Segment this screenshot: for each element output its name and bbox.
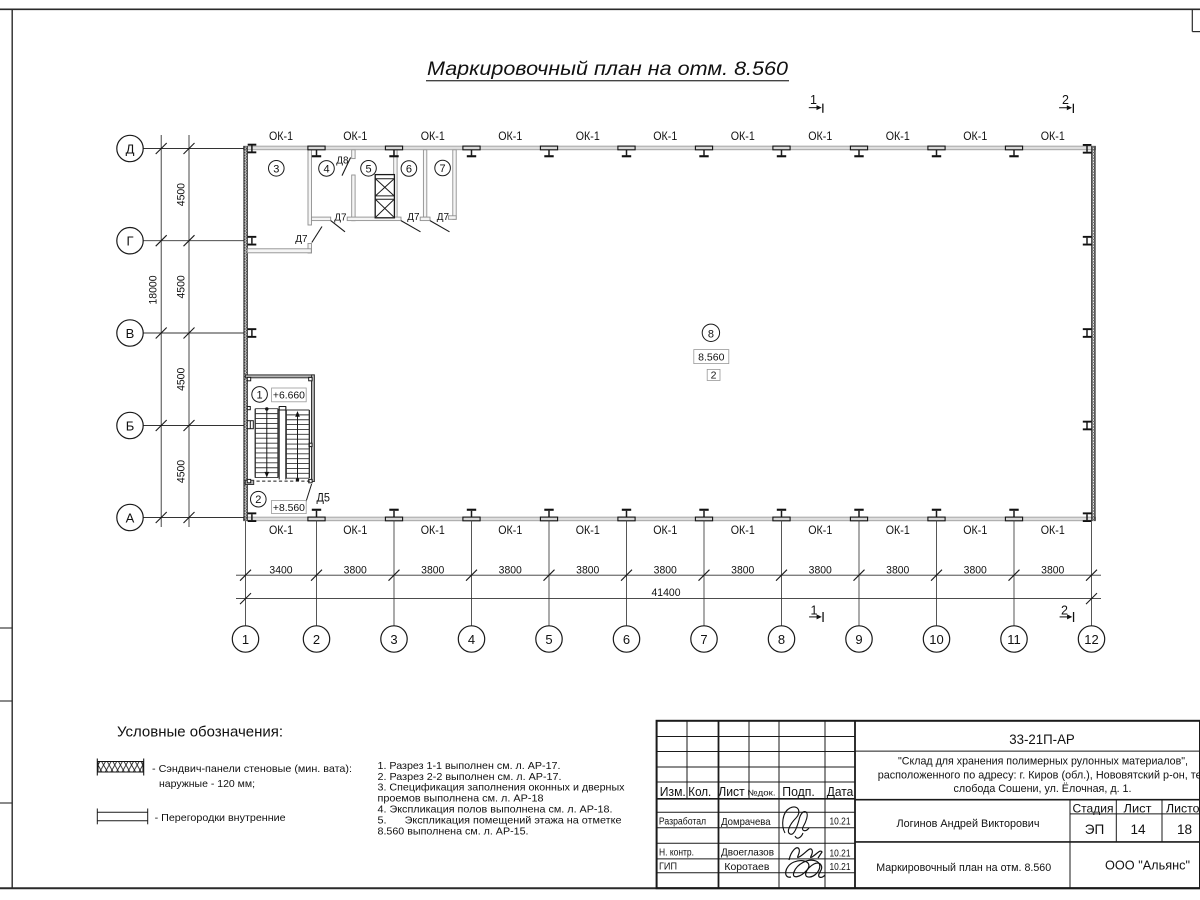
svg-text:8.560: 8.560 xyxy=(698,351,724,363)
svg-text:3800: 3800 xyxy=(809,564,832,576)
svg-text:Маркировочный план на отм. 8.5: Маркировочный план на отм. 8.560 xyxy=(427,58,788,80)
svg-text:3800: 3800 xyxy=(421,564,444,576)
svg-text:наружные - 120 мм;: наружные - 120 мм; xyxy=(159,779,255,790)
svg-text:3800: 3800 xyxy=(1041,564,1064,576)
svg-text:Н. контр.: Н. контр. xyxy=(659,847,694,858)
svg-text:33-21П-АР: 33-21П-АР xyxy=(1009,731,1075,747)
svg-text:Д7: Д7 xyxy=(407,212,419,223)
svg-text:Лист: Лист xyxy=(718,785,745,799)
svg-text:ОК-1: ОК-1 xyxy=(498,129,522,143)
svg-text:10.21: 10.21 xyxy=(830,862,851,873)
svg-text:6: 6 xyxy=(623,632,630,647)
svg-text:4. Экспликация полов выполнена: 4. Экспликация полов выполнена см. л. АР… xyxy=(378,805,613,816)
svg-text:+6.660: +6.660 xyxy=(273,391,305,402)
svg-text:Дата: Дата xyxy=(827,785,854,799)
svg-text:ОК-1: ОК-1 xyxy=(576,129,600,143)
svg-text:1. Разрез 1-1 выполнен см. л.: 1. Разрез 1-1 выполнен см. л. АР-17. xyxy=(378,761,561,772)
svg-text:ОК-1: ОК-1 xyxy=(886,129,910,143)
svg-text:3: 3 xyxy=(273,163,279,175)
svg-text:Двоеглазов: Двоеглазов xyxy=(721,847,774,859)
svg-text:8.560 выполнена см. л. АР-15.: 8.560 выполнена см. л. АР-15. xyxy=(378,827,529,838)
svg-text:слобода Сошени, ул. Ёлочная, д: слобода Сошени, ул. Ёлочная, д. 1. xyxy=(954,783,1132,795)
svg-text:Стадия: Стадия xyxy=(1073,802,1114,815)
svg-text:2. Разрез 2-2 выполнен см. л.: 2. Разрез 2-2 выполнен см. л. АР-17. xyxy=(378,772,562,783)
svg-text:ОК-1: ОК-1 xyxy=(731,129,755,143)
svg-text:Изм.: Изм. xyxy=(660,785,686,799)
svg-text:ООО "Альянс": ООО "Альянс" xyxy=(1105,857,1190,872)
svg-text:10.21: 10.21 xyxy=(830,817,851,828)
svg-text:Д5: Д5 xyxy=(317,491,331,505)
svg-text:Маркировочный план на отм. 8.5: Маркировочный план на отм. 8.560 xyxy=(876,862,1051,874)
svg-text:ОК-1: ОК-1 xyxy=(498,523,522,537)
svg-text:ОК-1: ОК-1 xyxy=(1041,129,1065,143)
svg-text:10: 10 xyxy=(929,632,943,647)
svg-text:Домрачева: Домрачева xyxy=(721,816,771,828)
svg-text:4500: 4500 xyxy=(176,368,188,391)
svg-text:Г: Г xyxy=(126,234,133,249)
svg-text:Логинов Андрей Викторович: Логинов Андрей Викторович xyxy=(897,818,1040,830)
svg-text:Д8: Д8 xyxy=(336,156,348,167)
svg-text:ОК-1: ОК-1 xyxy=(269,129,293,143)
svg-text:2: 2 xyxy=(1061,603,1068,617)
svg-text:Разработал: Разработал xyxy=(659,816,706,827)
svg-text:ОК-1: ОК-1 xyxy=(421,129,445,143)
svg-text:7: 7 xyxy=(440,163,446,175)
svg-text:Б: Б xyxy=(126,418,135,433)
svg-text:3400: 3400 xyxy=(269,564,292,576)
svg-text:3800: 3800 xyxy=(731,564,754,576)
svg-text:10.21: 10.21 xyxy=(830,848,851,859)
svg-text:8: 8 xyxy=(778,632,785,647)
svg-text:9: 9 xyxy=(855,632,862,647)
svg-text:Условные обозначения:: Условные обозначения: xyxy=(117,724,283,740)
svg-text:+8.560: +8.560 xyxy=(273,503,305,514)
svg-text:1: 1 xyxy=(242,632,249,647)
svg-text:ОК-1: ОК-1 xyxy=(653,129,677,143)
svg-text:Подп.: Подп. xyxy=(782,785,815,799)
svg-text:7: 7 xyxy=(700,632,707,647)
svg-text:Д7: Д7 xyxy=(437,212,449,223)
svg-text:А: А xyxy=(126,510,135,525)
svg-text:Лист: Лист xyxy=(1124,802,1153,815)
svg-text:ОК-1: ОК-1 xyxy=(963,523,987,537)
svg-text:ОК-1: ОК-1 xyxy=(269,523,293,537)
svg-text:Д7: Д7 xyxy=(334,213,346,224)
svg-text:ОК-1: ОК-1 xyxy=(731,523,755,537)
svg-text:2: 2 xyxy=(313,632,320,647)
svg-text:расположенного по адресу: г. К: расположенного по адресу: г. Киров (обл.… xyxy=(878,769,1200,781)
svg-text:11: 11 xyxy=(1007,632,1021,647)
svg-text:Коротаев: Коротаев xyxy=(724,861,769,873)
svg-text:В: В xyxy=(126,326,135,341)
svg-text:5. Экспликация помещений: 5. Экспликация помещений этажа на отметк… xyxy=(378,816,622,827)
svg-text:3800: 3800 xyxy=(576,564,599,576)
svg-text:18000: 18000 xyxy=(148,276,160,305)
svg-text:4: 4 xyxy=(323,163,329,175)
svg-text:4: 4 xyxy=(468,632,475,647)
svg-text:ОК-1: ОК-1 xyxy=(886,523,910,537)
svg-text:Листов: Листов xyxy=(1166,802,1200,815)
svg-text:14: 14 xyxy=(1130,822,1146,837)
svg-text:2: 2 xyxy=(255,494,261,506)
svg-text:8: 8 xyxy=(708,328,714,340)
svg-text:ОК-1: ОК-1 xyxy=(343,523,367,537)
svg-text:3800: 3800 xyxy=(654,564,677,576)
svg-text:- Сэндвич-панели стеновые (мин: - Сэндвич-панели стеновые (мин. вата): xyxy=(152,764,352,775)
svg-text:ОК-1: ОК-1 xyxy=(1041,523,1065,537)
svg-text:"Склад для хранения полимерных: "Склад для хранения полимерных рулонных … xyxy=(898,756,1188,768)
svg-text:5: 5 xyxy=(365,163,371,175)
svg-text:ГИП: ГИП xyxy=(659,862,677,873)
svg-text:ОК-1: ОК-1 xyxy=(343,129,367,143)
svg-text:1: 1 xyxy=(257,389,263,401)
svg-text:проемов выполнена см. л. АР-18: проемов выполнена см. л. АР-18 xyxy=(378,794,544,805)
svg-text:ОК-1: ОК-1 xyxy=(808,523,832,537)
svg-text:Д7: Д7 xyxy=(295,234,307,245)
svg-text:1: 1 xyxy=(811,603,818,617)
svg-text:3800: 3800 xyxy=(964,564,987,576)
svg-text:4500: 4500 xyxy=(176,183,188,206)
svg-text:41400: 41400 xyxy=(652,587,681,599)
svg-text:ОК-1: ОК-1 xyxy=(808,129,832,143)
svg-text:2: 2 xyxy=(1062,93,1069,107)
svg-text:3: 3 xyxy=(390,632,397,647)
svg-text:1: 1 xyxy=(810,93,817,107)
svg-text:ОК-1: ОК-1 xyxy=(963,129,987,143)
svg-text:ЭП: ЭП xyxy=(1085,822,1105,837)
svg-text:№док.: №док. xyxy=(747,787,775,797)
svg-text:- Перегородки внутренние: - Перегородки внутренние xyxy=(155,813,286,824)
svg-text:ОК-1: ОК-1 xyxy=(653,523,677,537)
svg-text:2: 2 xyxy=(711,370,717,382)
svg-text:Д: Д xyxy=(126,141,135,156)
svg-text:3800: 3800 xyxy=(499,564,522,576)
svg-text:3800: 3800 xyxy=(886,564,909,576)
svg-text:Кол.: Кол. xyxy=(688,785,711,799)
svg-text:3800: 3800 xyxy=(344,564,367,576)
svg-text:5: 5 xyxy=(545,632,552,647)
svg-text:12: 12 xyxy=(1084,632,1098,647)
svg-text:18: 18 xyxy=(1177,822,1192,837)
svg-text:3. Спецификация заполнения око: 3. Спецификация заполнения оконных и две… xyxy=(378,782,626,794)
svg-text:ОК-1: ОК-1 xyxy=(421,523,445,537)
svg-text:ОК-1: ОК-1 xyxy=(576,523,600,537)
svg-text:4500: 4500 xyxy=(176,275,188,298)
svg-text:4500: 4500 xyxy=(176,460,188,483)
svg-text:6: 6 xyxy=(406,164,412,176)
